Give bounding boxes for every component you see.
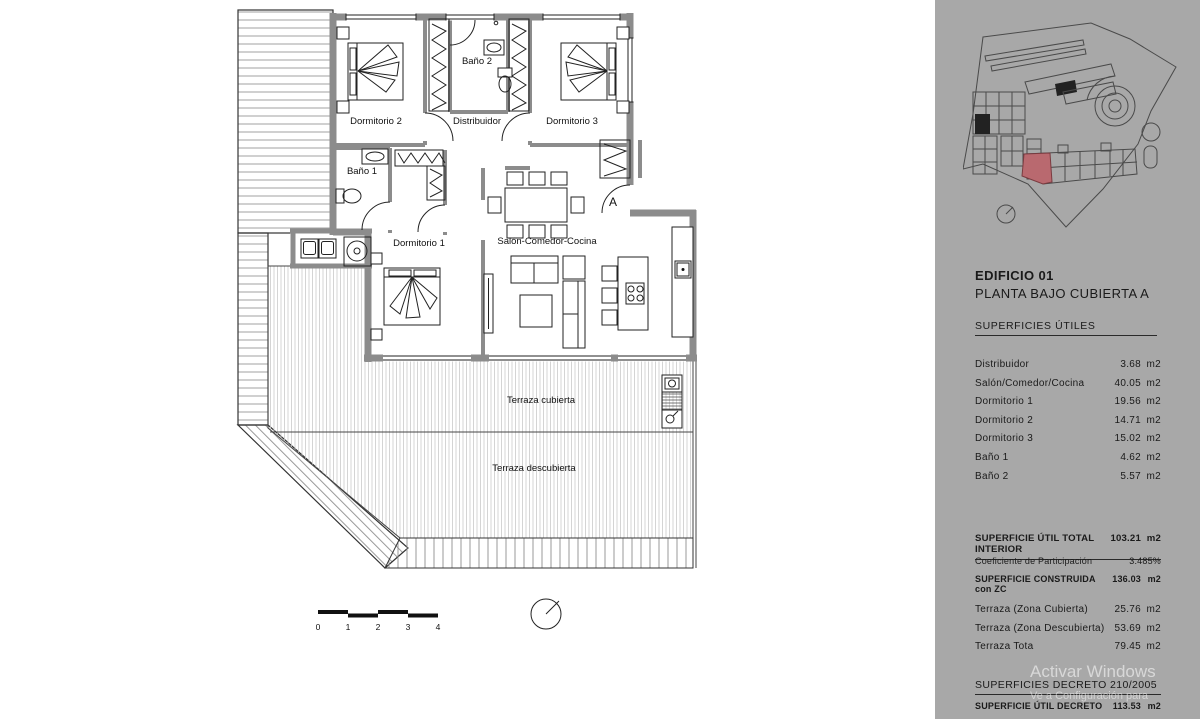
room-label-bano-2: Baño 2 [462, 56, 492, 67]
table-row: Terraza Tota 79.45 m2 [975, 638, 1161, 657]
table-row: Salón/Comedor/Cocina 40.05 m2 [975, 375, 1161, 394]
room-label-dormitorio-3: Dormitorio 3 [546, 116, 598, 127]
north-compass-icon [531, 599, 561, 629]
site-plan-map [963, 4, 1188, 234]
construida-row: SUPERFICIE CONSTRUIDA con ZC 136.03 m2 [975, 574, 1161, 594]
site-buildings [973, 64, 1160, 179]
floor-plan: Dormitorio 2 Distribuidor Dormitorio 3 B… [0, 0, 935, 719]
scale-tick-4: 4 [436, 622, 441, 632]
site-compass-icon [997, 205, 1015, 223]
surfaces-table: Distribuidor 3.68 m2 Salón/Comedor/Cocin… [975, 356, 1161, 486]
table-row: Terraza (Zona Descubierta) 53.69 m2 [975, 620, 1161, 639]
info-panel: EDIFICIO 01 PLANTA BAJO CUBIERTA A SUPER… [935, 0, 1200, 719]
plan-subtitle: PLANTA BAJO CUBIERTA A [975, 286, 1149, 301]
surfaces-heading: SUPERFICIES ÚTILES [975, 320, 1157, 336]
room-label-terraza-descubierta: Terraza descubierta [492, 463, 576, 474]
site-boundary [963, 23, 1176, 227]
table-row: Dormitorio 3 15.02 m2 [975, 430, 1161, 449]
scale-tick-2: 2 [376, 622, 381, 632]
entrance-label: A [609, 195, 617, 209]
scale-bar: 0 1 2 3 4 [316, 610, 441, 632]
room-label-distribuidor: Distribuidor [453, 116, 501, 127]
terrace-utility [662, 375, 682, 428]
room-label-dormitorio-2: Dormitorio 2 [350, 116, 402, 127]
table-row: Baño 2 5.57 m2 [975, 468, 1161, 487]
room-label-dormitorio-1: Dormitorio 1 [393, 238, 445, 249]
terrace-table: Terraza (Zona Cubierta) 25.76 m2 Terraza… [975, 601, 1161, 657]
table-row: Dormitorio 1 19.56 m2 [975, 393, 1161, 412]
scale-tick-1: 1 [346, 622, 351, 632]
scale-tick-0: 0 [316, 622, 321, 632]
table-row: Dormitorio 2 14.71 m2 [975, 412, 1161, 431]
table-row: Terraza (Zona Cubierta) 25.76 m2 [975, 601, 1161, 620]
building-title: EDIFICIO 01 [975, 268, 1054, 283]
decreto-heading: SUPERFICIES DECRETO 210/2005 [975, 679, 1161, 695]
room-label-terraza-cubierta: Terraza cubierta [507, 395, 576, 406]
table-row: Baño 1 4.62 m2 [975, 449, 1161, 468]
coeficiente-row: Coeficiente de Participación 3.485% [975, 556, 1161, 566]
table-row: Distribuidor 3.68 m2 [975, 356, 1161, 375]
room-label-bano-1: Baño 1 [347, 166, 377, 177]
room-label-salon: Salón-Comedor-Cocina [497, 236, 597, 247]
scale-tick-3: 3 [406, 622, 411, 632]
decreto-row: SUPERFICIE ÚTIL DECRETO 113.53 m2 [975, 701, 1161, 711]
terrace-bottom-band [385, 538, 693, 568]
floorplan-sheet: Dormitorio 2 Distribuidor Dormitorio 3 B… [0, 0, 1200, 719]
